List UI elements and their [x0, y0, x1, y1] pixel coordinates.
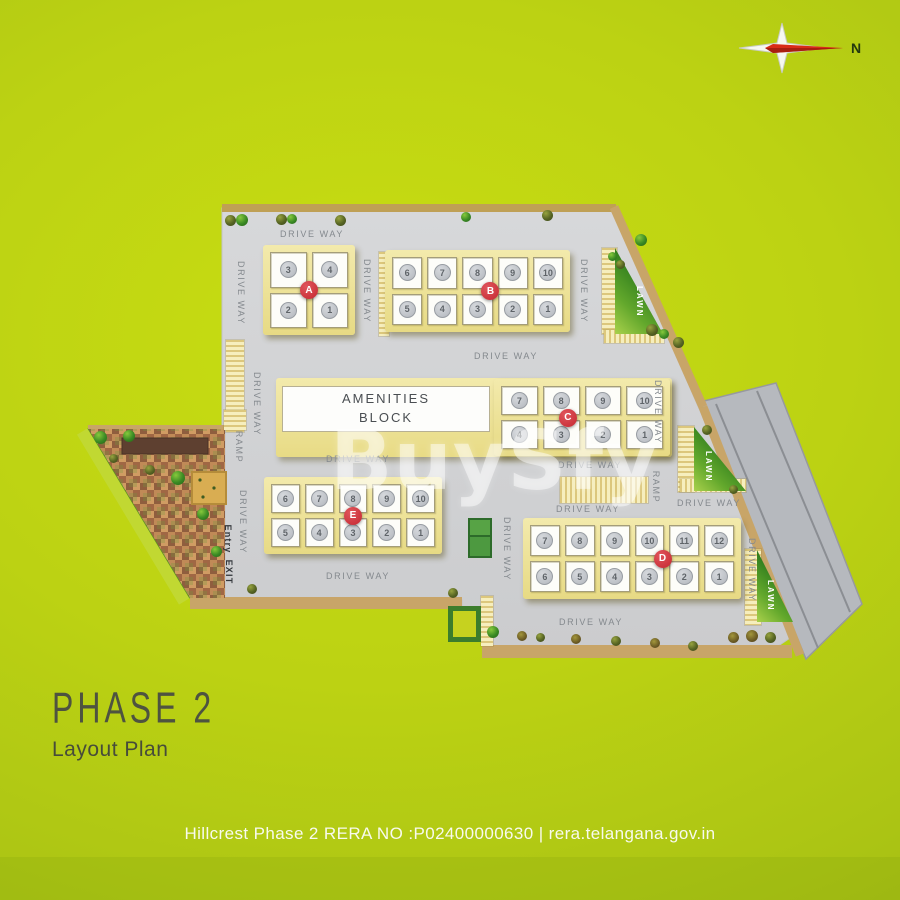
unit-number: 9 [594, 392, 611, 409]
unit-number: 2 [504, 301, 521, 318]
unit-number: 7 [434, 264, 451, 281]
unit-number: 8 [571, 532, 588, 549]
unit-number: 2 [378, 524, 395, 541]
tree [197, 508, 209, 520]
tree [225, 215, 236, 226]
unit-cell: 7 [427, 257, 457, 289]
unit-number: 9 [606, 532, 623, 549]
lawn-3: LAWN [757, 550, 793, 622]
unit-cell: 9 [585, 386, 622, 415]
tree [517, 631, 527, 641]
lawn-shape [694, 427, 746, 491]
unit-number: 1 [539, 301, 556, 318]
unit-cell: 2 [372, 518, 401, 547]
unit-cell: 6 [392, 257, 422, 289]
driveway-label: DRIVE WAY [362, 259, 372, 323]
page-title: PHASE 2 [52, 684, 215, 734]
driveway-label: DRIVE WAY [238, 490, 248, 554]
tree [211, 546, 222, 557]
unit-cell: 2 [498, 294, 528, 326]
unit-cell: 2 [270, 293, 307, 329]
driveway-label: RAMP [234, 431, 244, 463]
driveway-label: DRIVE WAY [326, 571, 390, 581]
unit-number: 10 [539, 264, 556, 281]
hatch-strip [481, 596, 493, 646]
driveway-label: EXIT [224, 560, 234, 585]
tree [611, 636, 621, 646]
unit-number: 4 [321, 261, 338, 278]
tree [728, 632, 739, 643]
tree [94, 431, 107, 444]
lawn-shape [757, 550, 793, 622]
unit-number: 7 [311, 490, 328, 507]
unit-number: 12 [711, 532, 728, 549]
tree [673, 337, 684, 348]
unit-cell: 2 [669, 561, 699, 592]
tree [247, 584, 257, 594]
block-badge-A: A [300, 281, 318, 299]
tree [542, 210, 553, 221]
unit-cell: 4 [427, 294, 457, 326]
unit-number: 10 [641, 532, 658, 549]
driveway-label: DRIVE WAY [236, 261, 246, 325]
hatch-strip [224, 410, 246, 430]
tree [461, 212, 471, 222]
unit-number: 6 [277, 490, 294, 507]
tree [746, 630, 758, 642]
driveway-label: DRIVE WAY [559, 617, 623, 627]
unit-cell: 5 [565, 561, 595, 592]
driveway-label: DRIVE WAY [747, 538, 757, 602]
unit-number: 8 [553, 392, 570, 409]
block-badge-D: D [654, 550, 672, 568]
unit-cell: 3 [270, 252, 307, 288]
unit-number: 5 [399, 301, 416, 318]
block-D: 789101112654321D [523, 518, 741, 599]
rera-footer: Hillcrest Phase 2 RERA NO :P02400000630 … [0, 824, 900, 844]
tree [145, 465, 155, 475]
tree [571, 634, 581, 644]
lawn-label: LAWN [704, 451, 713, 483]
compass-north-label: N [851, 40, 861, 56]
unit-number: 4 [311, 524, 328, 541]
unit-cell: 1 [704, 561, 734, 592]
lawn-label: LAWN [635, 286, 644, 318]
tree [646, 324, 658, 336]
tree [608, 252, 617, 261]
unit-cell: 4 [600, 561, 630, 592]
tree [729, 485, 738, 494]
tree [287, 214, 297, 224]
unit-number: 5 [571, 568, 588, 585]
driveway-label: DRIVE WAY [677, 498, 741, 508]
driveway-label: DRIVE WAY [474, 351, 538, 361]
unit-number: 10 [636, 392, 653, 409]
tree [171, 471, 185, 485]
tree [702, 425, 712, 435]
unit-cell: 8 [565, 525, 595, 556]
tree [650, 638, 660, 648]
lawn-patch-square [448, 606, 481, 642]
unit-number: 2 [676, 568, 693, 585]
unit-number: 11 [676, 532, 693, 549]
unit-cell: 1 [406, 518, 435, 547]
unit-number: 3 [641, 568, 658, 585]
unit-number: 3 [469, 301, 486, 318]
driveway-label: DRIVE WAY [579, 259, 589, 323]
block-badge-B: B [481, 282, 499, 300]
compass: N [727, 15, 877, 85]
unit-number: 1 [412, 524, 429, 541]
unit-cell: 1 [533, 294, 563, 326]
driveway-label: DRIVE WAY [280, 229, 344, 239]
unit-number: 4 [606, 568, 623, 585]
plaza-sandpit [192, 472, 226, 504]
unit-cell: 1 [312, 293, 349, 329]
unit-number: 7 [511, 392, 528, 409]
lawn-label: LAWN [766, 580, 775, 612]
tree [688, 641, 698, 651]
unit-cell: 9 [600, 525, 630, 556]
lawn-2: LAWN [694, 427, 746, 491]
unit-cell: 7 [530, 525, 560, 556]
unit-number: 3 [344, 524, 361, 541]
tree [765, 632, 776, 643]
driveway-label: Entry [223, 524, 233, 553]
unit-number: 7 [536, 532, 553, 549]
unit-cell: 4 [312, 252, 349, 288]
unit-cell: 5 [271, 518, 300, 547]
unit-number: 1 [711, 568, 728, 585]
unit-cell: 10 [533, 257, 563, 289]
layout-plan-canvas: AMENITIES BLOCK BuySfy N PHASE 2 Layout … [0, 0, 900, 900]
unit-number: 9 [504, 264, 521, 281]
title-block: PHASE 2 Layout Plan [52, 684, 256, 762]
tree [487, 626, 499, 638]
tree [123, 430, 135, 442]
unit-number: 5 [277, 524, 294, 541]
tree [635, 234, 647, 246]
unit-number: 2 [280, 302, 297, 319]
unit-cell: 6 [530, 561, 560, 592]
tree [276, 214, 287, 225]
tree [659, 329, 669, 339]
tree [448, 588, 458, 598]
unit-number: 3 [280, 261, 297, 278]
utility-structure [468, 518, 492, 558]
unit-cell: 12 [704, 525, 734, 556]
tree [616, 260, 625, 269]
unit-cell: 9 [498, 257, 528, 289]
unit-cell: 5 [392, 294, 422, 326]
unit-number: 4 [434, 301, 451, 318]
tree [109, 454, 118, 463]
amenities-label-line1: AMENITIES [283, 390, 489, 409]
page-subtitle: Layout Plan [52, 738, 256, 762]
driveway-label: DRIVE WAY [502, 517, 512, 581]
watermark: BuySfy [330, 414, 659, 509]
plaza-structure [122, 438, 208, 454]
unit-number: 8 [469, 264, 486, 281]
block-A: 3421A [263, 245, 355, 335]
block-badge-E: E [344, 507, 362, 525]
unit-cell: 4 [305, 518, 334, 547]
tree [536, 633, 545, 642]
unit-cell: 6 [271, 484, 300, 513]
tree [236, 214, 248, 226]
block-B: 67891054321B [385, 250, 570, 332]
driveway-label: DRIVE WAY [252, 372, 262, 436]
unit-number: 6 [536, 568, 553, 585]
tree [335, 215, 346, 226]
unit-number: 1 [321, 302, 338, 319]
unit-cell: 11 [669, 525, 699, 556]
unit-number: 6 [399, 264, 416, 281]
unit-cell: 7 [501, 386, 538, 415]
